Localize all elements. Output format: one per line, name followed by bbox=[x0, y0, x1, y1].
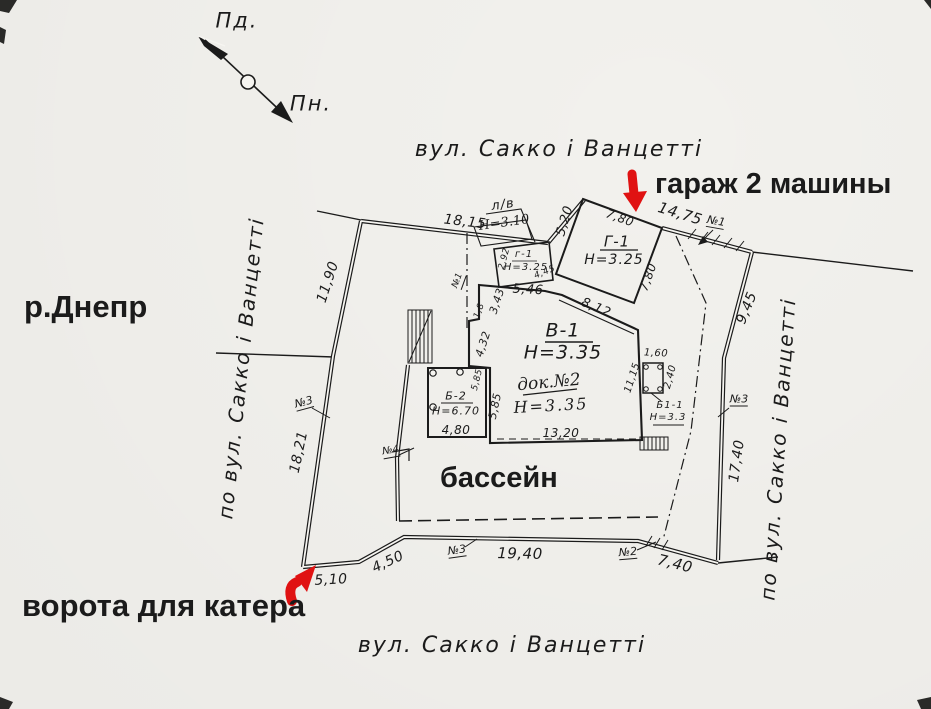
annotation-pool: бассейн bbox=[440, 464, 558, 493]
note-dock-height: Н=3.35 bbox=[513, 396, 589, 416]
compass-south-label: Пд. bbox=[216, 11, 259, 32]
garage-red-arrow bbox=[623, 174, 647, 212]
dimension-bottom-gate: 5,10 bbox=[314, 572, 348, 588]
dimension-b2-width: 4,80 bbox=[442, 424, 471, 436]
marker-fence3-right: №3 bbox=[730, 394, 748, 407]
building-height-garage-g1: Н=3.25 bbox=[584, 253, 643, 267]
building-height-block-b2: Н=6.70 bbox=[432, 406, 480, 417]
building-label-garage-g1: Г-1 bbox=[604, 235, 630, 250]
building-label-block-b2: Б-2 bbox=[445, 391, 467, 402]
site-plan: Пд. Пн. вул. Сакко і Ванцетті вул. Сакко… bbox=[0, 0, 931, 709]
building-label-house-v1: В-1 bbox=[546, 322, 581, 341]
dimension-bottom-fence: 19,40 bbox=[497, 546, 543, 562]
building-label-block-b1-1: Б1-1 bbox=[656, 401, 683, 411]
annotation-river: р.Днепр bbox=[24, 291, 147, 322]
building-height-house-v1: Н=3.35 bbox=[524, 344, 603, 363]
compass-north-label: Пн. bbox=[290, 94, 332, 115]
marker-fence3-bottom: №3 bbox=[447, 543, 467, 558]
building-height-block-b1-1: Н=3.3 bbox=[650, 413, 687, 423]
compass-icon bbox=[198, 36, 293, 123]
dimension-house-top: 5,46 bbox=[512, 283, 544, 298]
building-label-annex-g1: г-1 bbox=[515, 250, 533, 260]
building-label-shed-lv: л/в bbox=[491, 197, 516, 213]
street-label-top: вул. Сакко і Ванцетті bbox=[415, 139, 703, 161]
dimension-house-bottom: 13,20 bbox=[543, 427, 580, 439]
marker-fence2-bottom: №2 bbox=[618, 546, 638, 561]
annotation-garage: гараж 2 машины bbox=[655, 170, 891, 199]
annotation-gate: ворота для катера bbox=[22, 590, 305, 621]
dimension-b1-width: 1,60 bbox=[644, 348, 669, 359]
street-label-bottom: вул. Сакко і Ванцетті bbox=[358, 635, 646, 657]
